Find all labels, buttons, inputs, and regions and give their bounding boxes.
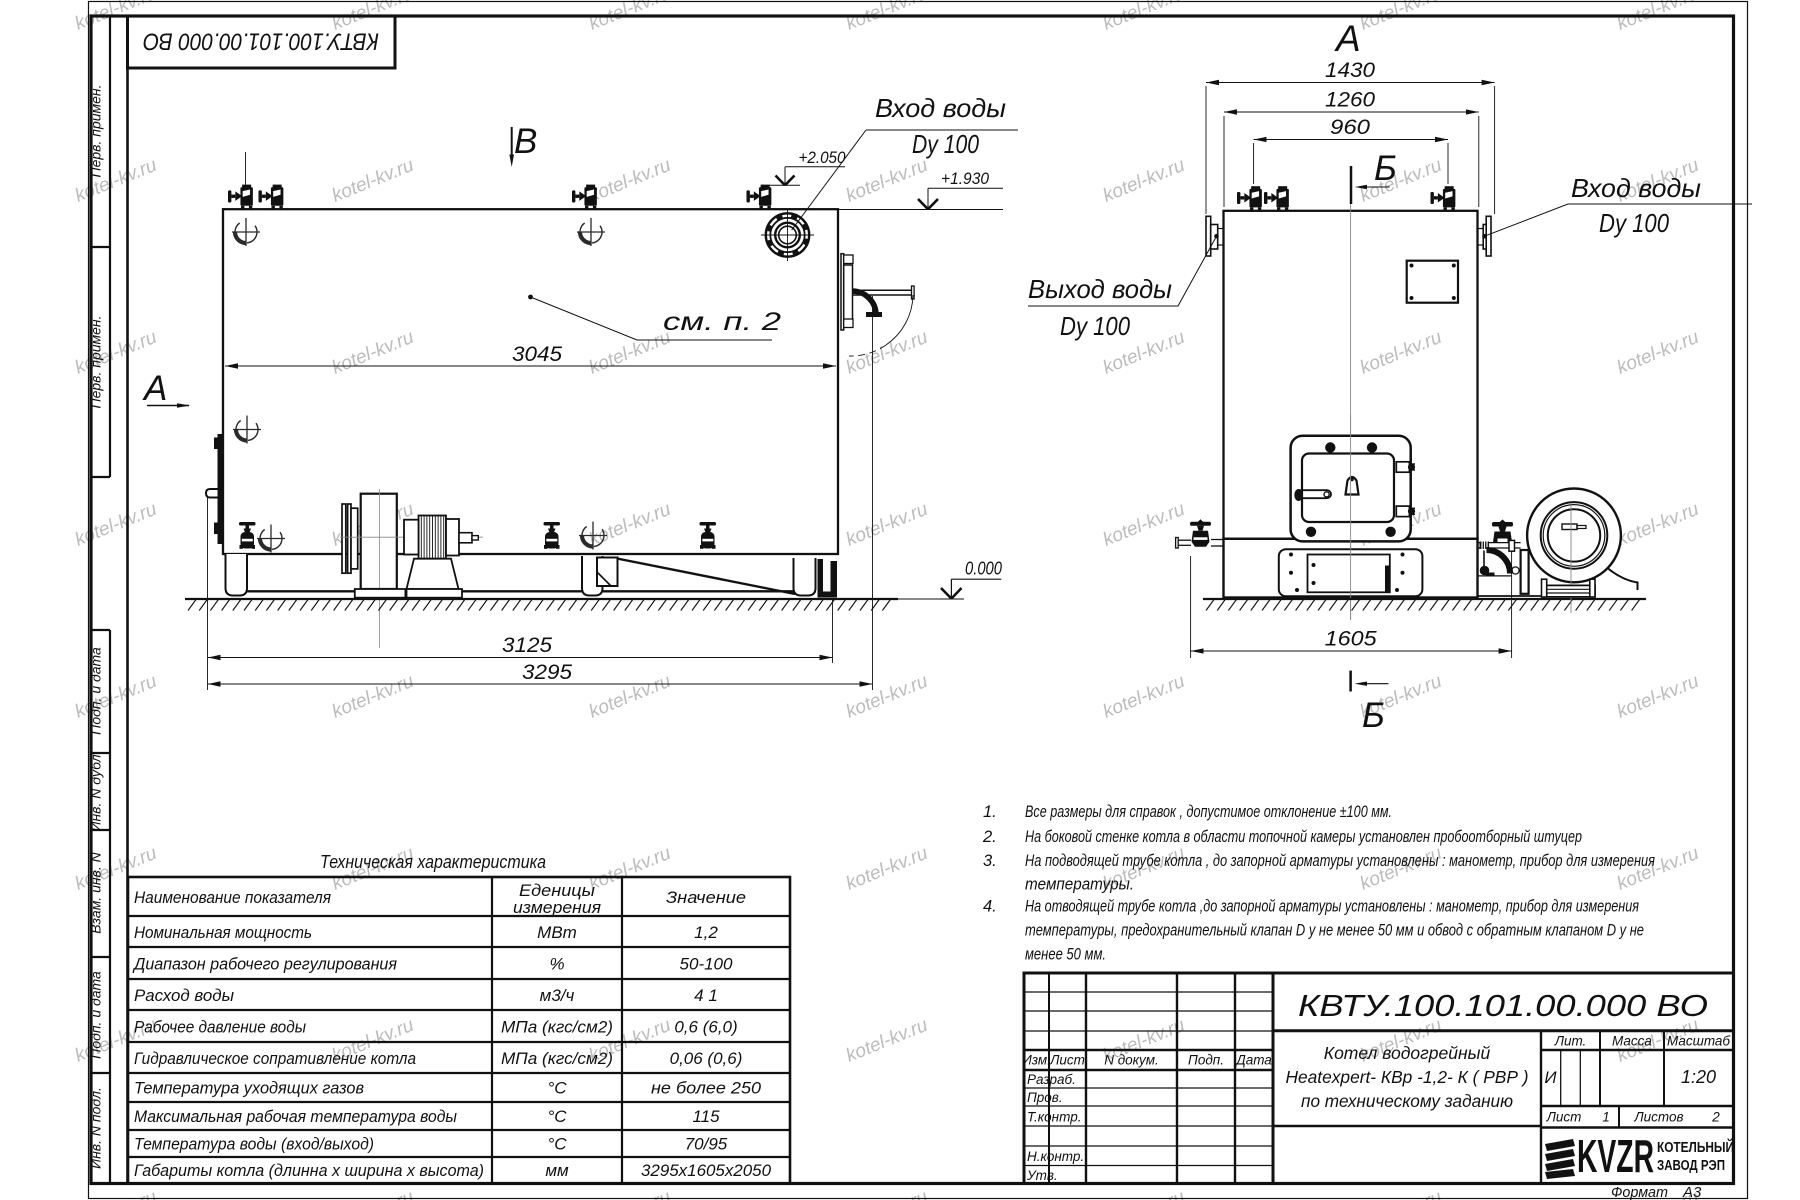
svg-text:Утв.: Утв. xyxy=(1026,1168,1058,1183)
svg-text:2: 2 xyxy=(1711,1110,1720,1125)
svg-text:°С: °С xyxy=(547,1079,567,1098)
svg-text:Лист: Лист xyxy=(1049,1053,1085,1068)
svg-text:В: В xyxy=(514,122,537,161)
svg-text:температуры.: температуры. xyxy=(1025,876,1134,894)
svg-text:Вход воды: Вход воды xyxy=(1571,173,1701,203)
svg-text:мм: мм xyxy=(545,1161,569,1180)
svg-text:Лит.: Лит. xyxy=(1554,1034,1587,1049)
svg-text:Н.контр.: Н.контр. xyxy=(1027,1149,1084,1164)
svg-text:0,06 (0,6): 0,06 (0,6) xyxy=(670,1049,743,1068)
svg-text:по техническому заданию: по техническому заданию xyxy=(1301,1091,1513,1111)
svg-text:На отводящей трубе котла ,до з: На отводящей трубе котла ,до запорной ар… xyxy=(1025,898,1639,916)
svg-text:МВт: МВт xyxy=(537,923,577,942)
svg-text:Б: Б xyxy=(1374,149,1397,188)
svg-text:1260: 1260 xyxy=(1325,89,1375,112)
svg-text:Листов: Листов xyxy=(1633,1110,1683,1125)
svg-text:Габариты котла (длинна х ширин: Габариты котла (длинна х ширина х высота… xyxy=(134,1161,484,1180)
svg-text:Dy 100: Dy 100 xyxy=(1060,311,1130,341)
svg-text:Температура воды (вход/выход): Температура воды (вход/выход) xyxy=(134,1135,374,1154)
svg-text:4.: 4. xyxy=(983,898,997,916)
svg-text:Подп. и дата: Подп. и дата xyxy=(88,971,104,1059)
svg-text:КОТЕЛЬНЫЙ: КОТЕЛЬНЫЙ xyxy=(1657,1138,1734,1156)
svg-text:Дата: Дата xyxy=(1234,1053,1272,1068)
svg-text:МПа (кгс/см2): МПа (кгс/см2) xyxy=(501,1018,613,1037)
svg-text:КВТУ.100.101.00.000 ВО: КВТУ.100.101.00.000 ВО xyxy=(1298,988,1708,1023)
svg-text:Номинальная мощность: Номинальная мощность xyxy=(134,923,312,942)
svg-text:А: А xyxy=(142,369,167,408)
svg-text:1605: 1605 xyxy=(1325,628,1377,651)
svg-text:Взам. инв. N: Взам. инв. N xyxy=(88,851,104,933)
svg-text:960: 960 xyxy=(1330,116,1370,139)
svg-text:А3: А3 xyxy=(1682,1184,1702,1200)
svg-text:3295: 3295 xyxy=(522,661,572,684)
svg-text:Масса: Масса xyxy=(1612,1034,1652,1049)
svg-text:м3/ч: м3/ч xyxy=(540,986,575,1005)
svg-text:°С: °С xyxy=(547,1107,567,1126)
svg-text:3045: 3045 xyxy=(512,343,562,366)
svg-text:не более 250: не более 250 xyxy=(651,1079,762,1098)
svg-text:Формат: Формат xyxy=(1611,1184,1668,1200)
svg-text:Разраб.: Разраб. xyxy=(1027,1072,1076,1087)
svg-text:температуры, предохранительный: температуры, предохранительный клапан D … xyxy=(1025,922,1644,940)
svg-text:Температура уходящих газов: Температура уходящих газов xyxy=(134,1079,364,1098)
svg-text:Значение: Значение xyxy=(666,888,746,907)
svg-text:°С: °С xyxy=(547,1135,567,1154)
svg-text:Диапазон рабочего регулировани: Диапазон рабочего регулирования xyxy=(132,955,397,974)
svg-text:Лист: Лист xyxy=(1546,1110,1582,1125)
svg-text:см. п. 2: см. п. 2 xyxy=(663,308,781,336)
svg-text:Максимальная рабочая температу: Максимальная рабочая температура воды xyxy=(134,1107,457,1126)
svg-text:Все размеры для справок , допу: Все размеры для справок , допустимое отк… xyxy=(1025,803,1392,821)
svg-text:+1.930: +1.930 xyxy=(941,169,989,188)
svg-text:KVZR: KVZR xyxy=(1577,1130,1654,1182)
svg-text:3295х1605х2050: 3295х1605х2050 xyxy=(641,1161,772,1180)
svg-text:Расход воды: Расход воды xyxy=(134,986,234,1005)
svg-text:Пров.: Пров. xyxy=(1027,1090,1063,1105)
svg-text:1:20: 1:20 xyxy=(1681,1067,1716,1087)
svg-text:115: 115 xyxy=(692,1107,720,1126)
svg-text:Масштаб: Масштаб xyxy=(1667,1034,1730,1049)
svg-text:Изм.: Изм. xyxy=(1022,1053,1051,1068)
svg-text:0,6 (6,0): 0,6 (6,0) xyxy=(674,1018,737,1037)
svg-text:измерения: измерения xyxy=(513,898,601,917)
svg-text:Б: Б xyxy=(1362,696,1385,735)
svg-text:Наименование показателя: Наименование показателя xyxy=(134,888,331,907)
svg-text:И: И xyxy=(1544,1068,1557,1087)
svg-text:+2.050: +2.050 xyxy=(799,148,846,167)
svg-text:0.000: 0.000 xyxy=(965,559,1002,579)
svg-text:Подп.: Подп. xyxy=(1188,1053,1224,1068)
svg-text:менее 50 мм.: менее 50 мм. xyxy=(1025,946,1106,964)
svg-text:Гидравлическое сопративление к: Гидравлическое сопративление котла xyxy=(134,1049,416,1068)
svg-text:Перв. примен.: Перв. примен. xyxy=(88,315,104,408)
svg-text:А: А xyxy=(1334,18,1361,59)
svg-text:Heatexpert- КВр -1,2- К ( РВР: Heatexpert- КВр -1,2- К ( РВР ) xyxy=(1286,1067,1529,1087)
svg-text:1.: 1. xyxy=(983,803,997,821)
svg-text:1: 1 xyxy=(1602,1110,1610,1125)
svg-text:3125: 3125 xyxy=(502,634,552,657)
svg-text:1430: 1430 xyxy=(1325,59,1375,82)
svg-text:МПа (кгс/см2): МПа (кгс/см2) xyxy=(501,1049,613,1068)
svg-text:Котел водогрейный: Котел водогрейный xyxy=(1324,1043,1491,1063)
svg-text:%: % xyxy=(549,955,564,974)
svg-text:3.: 3. xyxy=(983,852,997,870)
svg-text:Выход воды: Выход воды xyxy=(1028,274,1172,304)
svg-text:На подводящей трубе котла ,: На подводящей трубе котла , до запорной … xyxy=(1025,852,1655,870)
svg-text:1,2: 1,2 xyxy=(694,923,718,942)
svg-text:На боковой стенке котла в обла: На боковой стенке котла в области топочн… xyxy=(1025,828,1582,846)
svg-text:N докум.: N докум. xyxy=(1104,1053,1159,1068)
svg-text:4 1: 4 1 xyxy=(694,986,718,1005)
svg-text:ЗАВОД РЭП: ЗАВОД РЭП xyxy=(1657,1158,1725,1174)
svg-text:Вход воды: Вход воды xyxy=(875,93,1006,123)
svg-text:Dy 100: Dy 100 xyxy=(912,129,979,159)
svg-text:Инв. N дубл.: Инв. N дубл. xyxy=(88,750,104,831)
svg-text:Рабочее давление воды: Рабочее давление воды xyxy=(134,1018,306,1037)
svg-text:КВТУ.100.101.00.000 ВО: КВТУ.100.101.00.000 ВО xyxy=(143,28,379,55)
svg-text:Dy 100: Dy 100 xyxy=(1599,208,1669,238)
svg-text:50-100: 50-100 xyxy=(680,955,733,974)
svg-text:70/95: 70/95 xyxy=(685,1135,728,1154)
svg-text:Т.контр.: Т.контр. xyxy=(1027,1110,1081,1125)
svg-text:2.: 2. xyxy=(982,828,997,846)
svg-text:Перв. примен.: Перв. примен. xyxy=(88,84,104,177)
svg-text:Техническая характеристика: Техническая характеристика xyxy=(320,852,546,872)
svg-text:Инв. N подл.: Инв. N подл. xyxy=(88,1087,104,1169)
svg-text:Подп. и дата: Подп. и дата xyxy=(88,647,104,735)
